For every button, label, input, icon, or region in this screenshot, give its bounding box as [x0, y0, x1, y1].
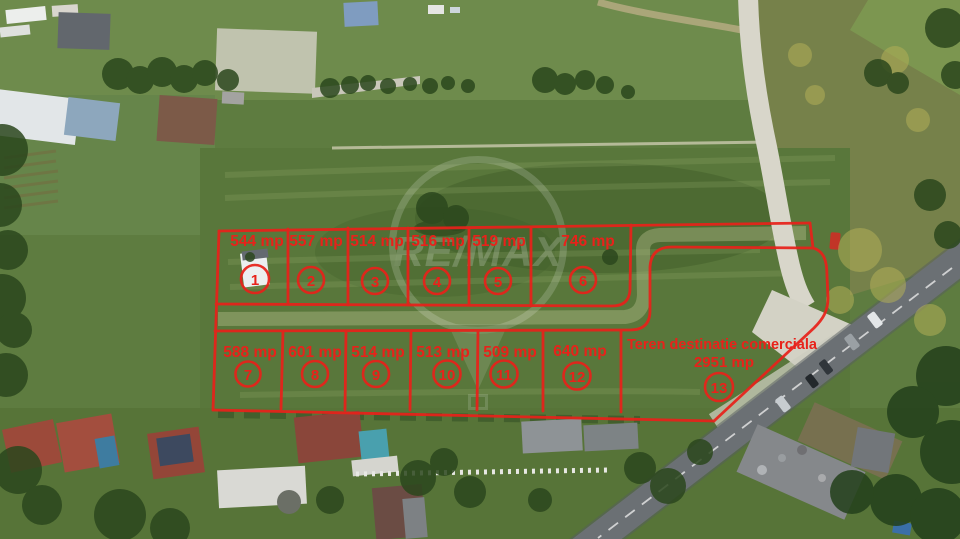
plot-area-label-1: 544 mp — [230, 233, 283, 250]
plot-number-7: 7 — [244, 367, 252, 384]
plot-number-10: 10 — [439, 367, 456, 384]
plot-number-11: 11 — [496, 367, 512, 384]
plot-area-label-10: 513 mp — [416, 344, 469, 361]
plot-area-label-12: 640 mp — [553, 343, 606, 360]
plot-area-label-2: 557 mp — [289, 233, 342, 250]
commercial-plot-area: 2951 mp — [694, 354, 754, 371]
plot-boundaries — [213, 223, 828, 421]
plot-number-2: 2 — [307, 273, 315, 290]
plot-area-label-8: 601 mp — [288, 344, 341, 361]
plot-number-6: 6 — [579, 273, 587, 290]
boundary-left-edge — [213, 231, 219, 410]
boundary-road-connector — [810, 223, 813, 248]
plot-area-label-6: 746 mp — [561, 233, 614, 250]
aerial-photo: RE/MAX — [0, 0, 960, 539]
plot-number-5: 5 — [494, 274, 502, 291]
plot-area-label-3: 514 mp — [350, 233, 403, 250]
plot-number-1: 1 — [251, 272, 259, 289]
plot-number-4: 4 — [433, 274, 442, 291]
plot-number-8: 8 — [311, 367, 319, 384]
plot-area-label-5: 519 mp — [472, 233, 525, 250]
plot-number-12: 12 — [569, 369, 586, 386]
plot-number-9: 9 — [372, 367, 380, 384]
plot-area-label-7: 588 mp — [223, 344, 276, 361]
bottom-row-bottom-edge — [213, 410, 714, 421]
plot-area-label-9: 514 mp — [351, 344, 404, 361]
plot-number-3: 3 — [371, 274, 379, 291]
plot-area-label-4: 516 mp — [411, 233, 464, 250]
boundary-top-edge — [219, 223, 810, 231]
commercial-plot-title: Teren destinatie comerciala — [627, 337, 818, 353]
plot-number-13: 13 — [711, 380, 728, 397]
plot-overlay: 544 mp 557 mp 514 mp 516 mp 519 mp 746 m… — [0, 0, 960, 539]
access-road-inner-boundary — [215, 247, 813, 331]
plot-area-label-11: 509 mp — [483, 344, 536, 361]
plot-labels: 544 mp 557 mp 514 mp 516 mp 519 mp 746 m… — [223, 233, 818, 397]
